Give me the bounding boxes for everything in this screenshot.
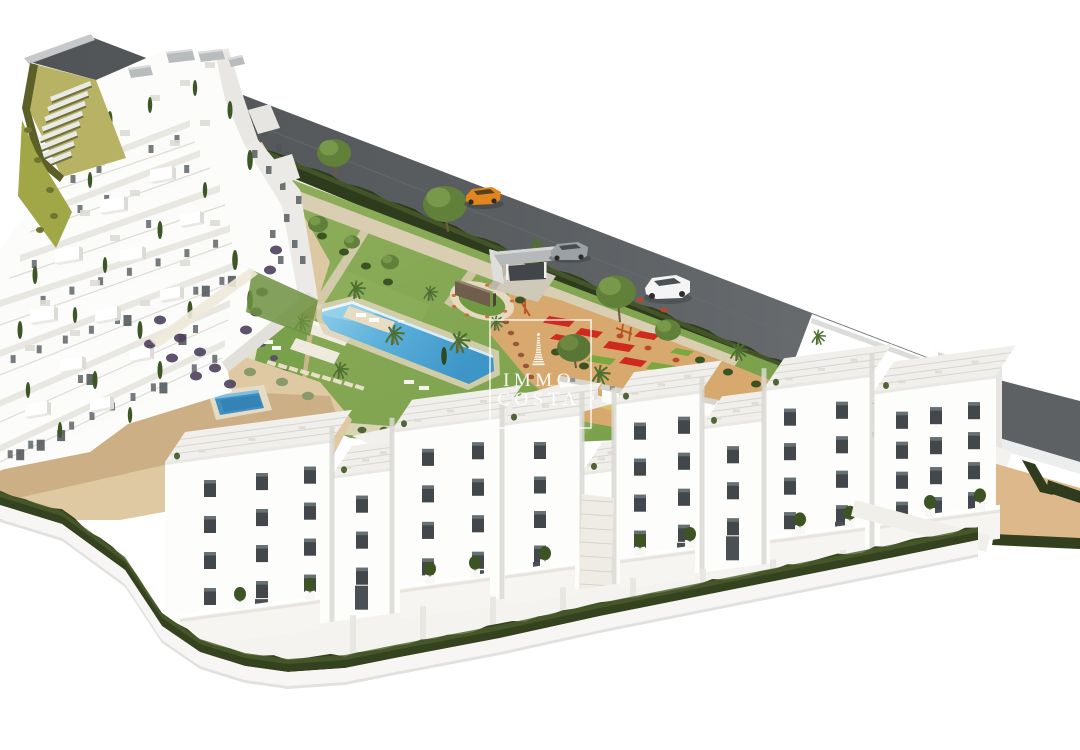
svg-text:IMMO: IMMO bbox=[503, 370, 575, 391]
svg-text:COSTA: COSTA bbox=[497, 389, 580, 410]
